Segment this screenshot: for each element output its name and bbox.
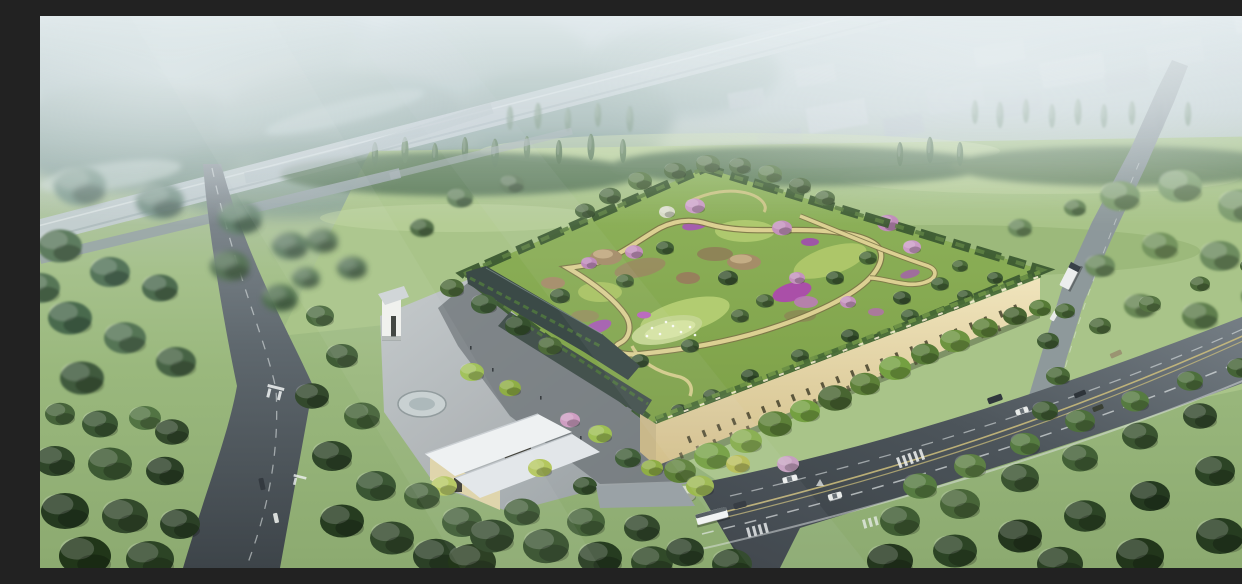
entrance-drive [596, 482, 695, 508]
architectural-rendering [40, 16, 1242, 568]
rendering-canvas [40, 16, 1242, 568]
